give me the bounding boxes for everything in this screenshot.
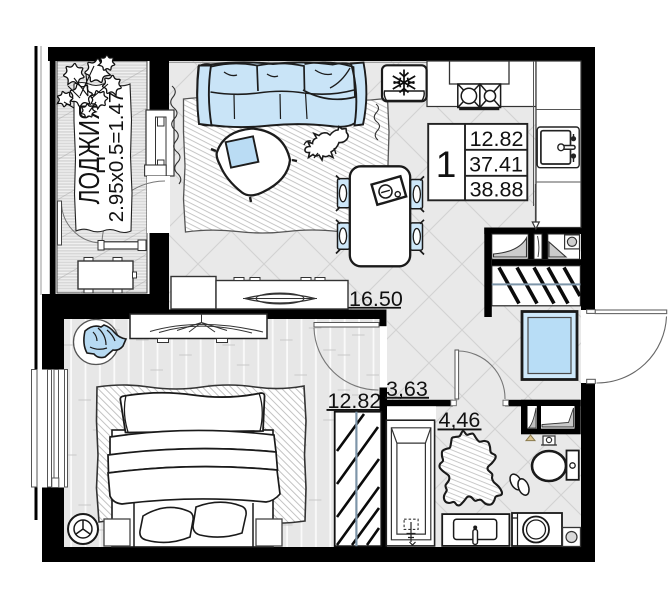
svg-text:2.95x0.5=1.47: 2.95x0.5=1.47 <box>105 92 128 223</box>
svg-text:12.82: 12.82 <box>470 127 524 151</box>
svg-text:38.88: 38.88 <box>470 177 524 201</box>
svg-text:ЛОДЖИЯ: ЛОДЖИЯ <box>72 104 105 205</box>
svg-text:37.41: 37.41 <box>469 153 523 177</box>
svg-text:4,46: 4,46 <box>439 408 481 432</box>
svg-text:1: 1 <box>436 144 457 185</box>
